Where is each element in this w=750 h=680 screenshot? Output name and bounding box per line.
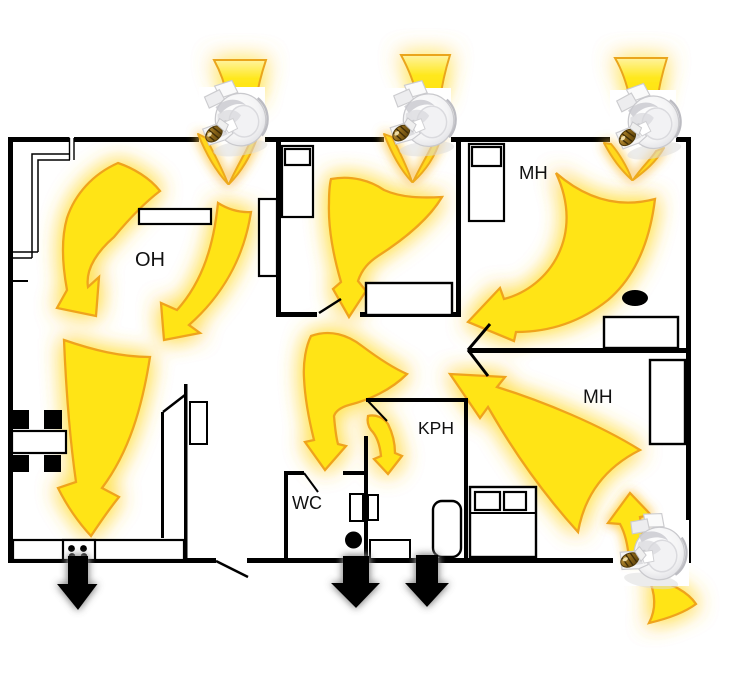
svg-text:MH: MH bbox=[519, 162, 548, 183]
svg-text:WC: WC bbox=[292, 493, 322, 513]
svg-text:OH: OH bbox=[135, 249, 165, 271]
svg-text:KPH: KPH bbox=[418, 418, 454, 438]
svg-text:MH: MH bbox=[583, 387, 613, 408]
